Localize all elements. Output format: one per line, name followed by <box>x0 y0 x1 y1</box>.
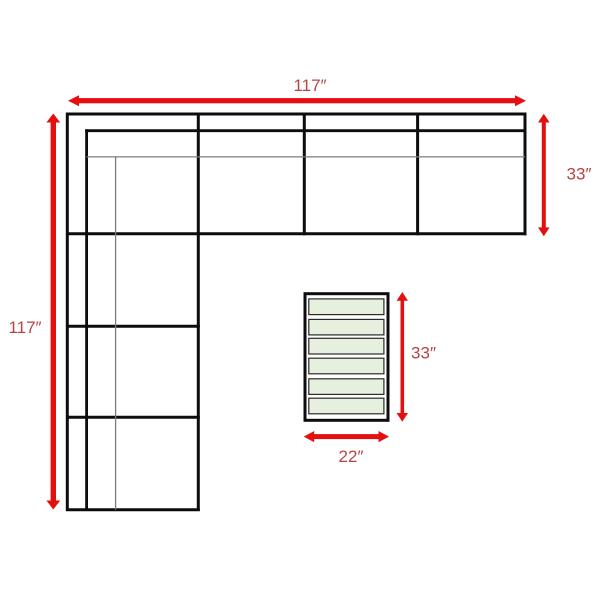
svg-text:117″: 117″ <box>293 76 326 95</box>
svg-text:33″: 33″ <box>411 344 436 363</box>
svg-text:22″: 22″ <box>339 447 364 466</box>
svg-text:33″: 33″ <box>567 165 592 184</box>
svg-text:117″: 117″ <box>8 318 41 337</box>
